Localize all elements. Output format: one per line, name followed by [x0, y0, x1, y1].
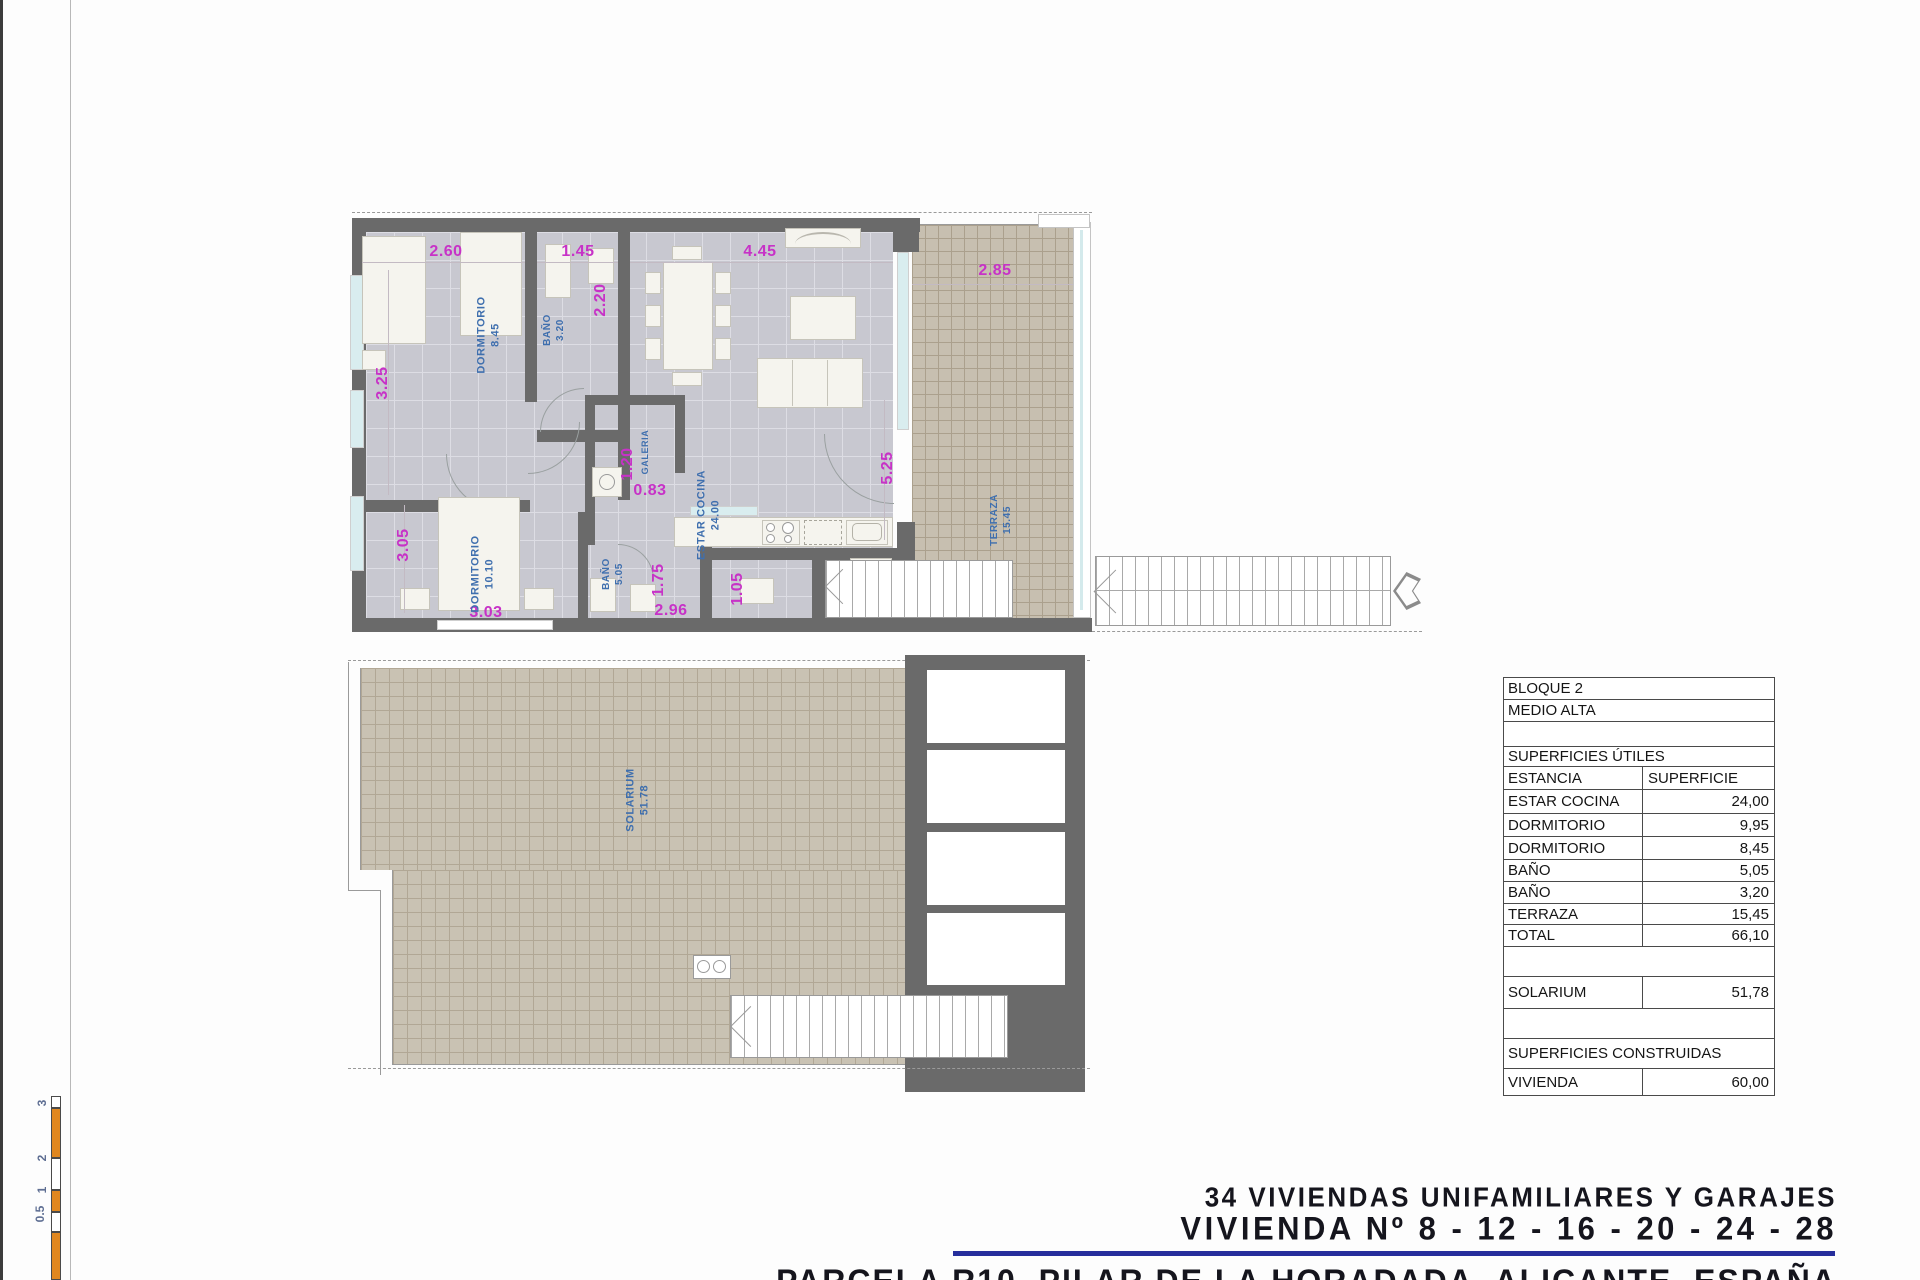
room-label-terraza: TERRAZA 15.45 [988, 494, 1014, 546]
dining-chair [645, 272, 661, 294]
table-row-label: TOTAL [1504, 925, 1642, 946]
table-vivienda-value: 60,00 [1642, 1069, 1774, 1095]
dining-chair [715, 305, 731, 327]
scalebar-segment [51, 1212, 61, 1232]
table-row-label: TERRAZA [1504, 904, 1642, 925]
room-area: 24.00 [709, 500, 723, 531]
room-name: BAÑO [600, 558, 613, 590]
table-empty-row [1504, 1022, 1774, 1026]
dim-525: 5.25 [879, 451, 897, 484]
solarium-outline-left [348, 662, 349, 890]
room-label-estar: ESTAR COCINA 24.00 [695, 470, 724, 560]
dining-chair [715, 338, 731, 360]
table-row-value: 15,45 [1642, 904, 1774, 924]
room-label-galeria: GALERIA [640, 430, 652, 475]
table-solarium-label: SOLARIUM [1504, 982, 1642, 1003]
wall-galeria-top [585, 395, 685, 405]
dim-120: 1.20 [619, 447, 637, 480]
sofa-seam [827, 360, 828, 406]
dimline-260 [362, 262, 525, 263]
room-area: 15.45 [1001, 506, 1014, 534]
room-name: DORMITORIO [469, 535, 483, 612]
core-opening [927, 913, 1065, 985]
dim-145: 1.45 [561, 243, 594, 261]
table-vivienda-label: VIVIENDA [1504, 1072, 1642, 1093]
table-row-value: 5,05 [1642, 860, 1774, 881]
room-name: GALERIA [640, 430, 652, 475]
title-line3: PARCELA R10, PILAR DE LA HORADADA, ALICA… [776, 1262, 1837, 1280]
table-header-superficie: SUPERFICIE [1642, 767, 1774, 789]
table-solarium-value: 51,78 [1642, 977, 1774, 1008]
table-row-label: DORMITORIO [1504, 815, 1642, 836]
dimline-285 [912, 284, 1073, 285]
table-row-label: BAÑO [1504, 882, 1642, 903]
scalebar-segment [51, 1232, 61, 1280]
room-name: TERRAZA [988, 494, 1001, 546]
washer-drum [599, 474, 615, 490]
exterior-stair-midline [1096, 590, 1390, 591]
room-name: ESTAR COCINA [695, 470, 709, 560]
dim-260: 2.60 [429, 243, 462, 261]
table-row-value: 3,20 [1642, 882, 1774, 903]
areas-table: BLOQUE 2 MEDIO ALTA SUPERFICIES ÚTILES E… [1503, 677, 1775, 1096]
table-row-value: 9,95 [1642, 814, 1774, 836]
scalebar-label-3: 3 [35, 1100, 49, 1107]
dimline-145 [537, 262, 618, 263]
scalebar-label-1: 1 [35, 1187, 49, 1194]
table-superficies-utiles: SUPERFICIES ÚTILES [1504, 746, 1774, 767]
core-opening [927, 670, 1065, 743]
dim-305: 3.05 [395, 528, 413, 561]
dining-chair [645, 305, 661, 327]
title-line2: VIVIENDA Nº 8 - 12 - 16 - 20 - 24 - 28 [1180, 1210, 1837, 1248]
core-opening [927, 750, 1065, 823]
window-dorm1-left-2 [350, 390, 364, 448]
burner [782, 522, 794, 534]
dim-083: 0.83 [633, 482, 666, 500]
table-medio-alta: MEDIO ALTA [1504, 700, 1774, 721]
room-name: DORMITORIO [475, 296, 489, 373]
dim-325: 3.25 [374, 366, 392, 399]
dining-chair [715, 272, 731, 294]
table-superficies-construidas: SUPERFICIES CONSTRUIDAS [1504, 1043, 1774, 1064]
scalebar-segment [51, 1158, 61, 1190]
sheet-frame-line [70, 0, 71, 1280]
terrace-top-notch [1038, 214, 1090, 228]
room-label-solarium: SOLARIUM 51.78 [624, 768, 653, 831]
stair-direction-arrow-inner [1396, 576, 1418, 606]
table-row-label: DORMITORIO [1504, 838, 1642, 859]
table-empty-row [1504, 960, 1774, 964]
skylight-circle [697, 960, 710, 973]
dishwasher [804, 520, 842, 545]
room-name: SOLARIUM [624, 768, 638, 831]
scalebar-segment [51, 1190, 61, 1212]
room-area: 8.45 [489, 323, 503, 347]
wall-galeria-right [675, 395, 685, 473]
room-area: 10.10 [483, 559, 497, 590]
dining-chair [645, 338, 661, 360]
table-header-estancia: ESTANCIA [1504, 768, 1642, 789]
dim-445: 4.45 [743, 243, 776, 261]
solarium-outline-step [348, 890, 380, 891]
sheet-left-edge [0, 0, 3, 1280]
dim-285: 2.85 [978, 262, 1011, 280]
solarium-outline-left2 [380, 890, 381, 1075]
coffee-table [790, 296, 856, 340]
exterior-stair-dashed-line [1092, 631, 1422, 632]
dim-105: 1.05 [729, 572, 747, 605]
room-label-dorm1: DORMITORIO 8.45 [475, 296, 504, 373]
window-dorm2-left [350, 496, 364, 571]
lower-plan-bottom-dashed-line [348, 1068, 1090, 1069]
dim-220: 2.20 [592, 283, 610, 316]
room-label-dorm2: DORMITORIO 10.10 [469, 535, 498, 612]
dimline-445 [630, 262, 893, 263]
burner [766, 534, 775, 543]
room-area: 3.20 [554, 319, 567, 341]
skylight-circle [713, 960, 726, 973]
table-row-value: 8,45 [1642, 837, 1774, 859]
table-row-value: 66,10 [1642, 925, 1774, 946]
dorm2-nightstand [524, 588, 554, 610]
table-bloque: BLOQUE 2 [1504, 678, 1774, 699]
table-row-value: 24,00 [1642, 790, 1774, 813]
title-accent-rule [953, 1251, 1835, 1256]
drawing-sheet: 2.60 1.45 4.45 2.85 3.25 2.20 5.25 3.05 … [0, 0, 1920, 1280]
table-empty-row [1504, 732, 1774, 736]
scalebar-label-05: 0.5 [33, 1206, 47, 1223]
burner [766, 523, 775, 532]
dining-chair [672, 372, 702, 386]
window-estar-right [897, 252, 909, 430]
dining-chair [672, 246, 702, 260]
title-line1: 34 VIVIENDAS UNIFAMILIARES Y GARAJES [1205, 1181, 1837, 1214]
terrace-right-glazing-line [1080, 230, 1083, 610]
lower-stair [730, 995, 1008, 1058]
dorm1-bed [362, 236, 426, 344]
wall-dorm2-bano2 [578, 512, 588, 618]
dim-296: 2.96 [654, 602, 687, 620]
burner [784, 535, 792, 543]
sofa-seam [792, 360, 793, 406]
room-label-bano1: BAÑO 3.20 [541, 314, 567, 346]
scalebar-segment [51, 1108, 61, 1158]
room-area: 51.78 [638, 785, 652, 816]
dining-table [663, 262, 713, 370]
core-opening [927, 832, 1065, 905]
table-row-label: ESTAR COCINA [1504, 791, 1642, 812]
scalebar-segment [51, 1096, 61, 1108]
sink-bowl [852, 523, 882, 541]
wall-dorm1-bano1 [525, 232, 537, 402]
wall-top-right-stub [893, 218, 919, 252]
wall-stair-left [812, 548, 825, 618]
wall-dorm1-bottom-a [352, 500, 444, 512]
upper-plan-top-dashed-line [352, 212, 1092, 213]
sofa [757, 358, 863, 408]
dim-175: 1.75 [650, 563, 668, 596]
table-row-label: BAÑO [1504, 860, 1642, 881]
room-label-bano2: BAÑO 5.05 [600, 558, 626, 590]
room-area: 5.05 [613, 563, 626, 585]
room-name: BAÑO [541, 314, 554, 346]
exterior-stair [1095, 556, 1391, 626]
scalebar-label-2: 2 [35, 1155, 49, 1162]
